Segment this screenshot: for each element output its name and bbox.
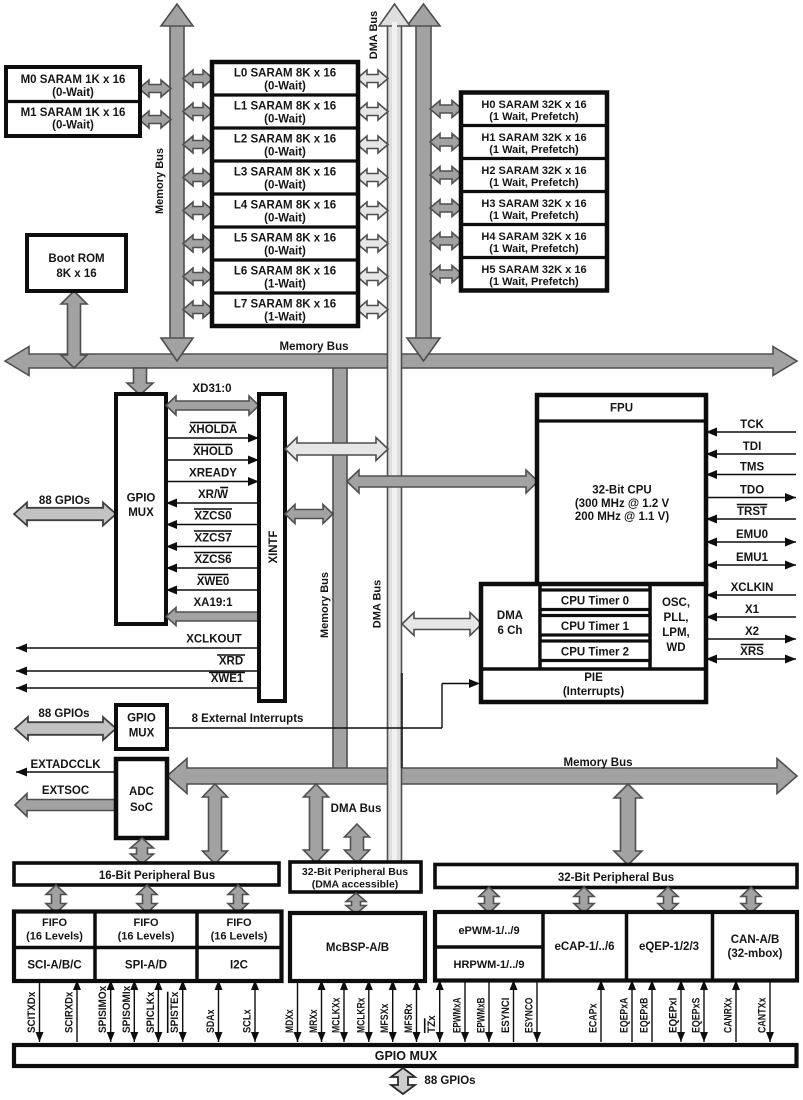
svg-text:(0-Wait): (0-Wait) [264, 81, 306, 93]
svg-text:XD31:0: XD31:0 [193, 383, 232, 395]
svg-text:CPU Timer 1: CPU Timer 1 [561, 621, 630, 633]
svg-text:DMA Bus: DMA Bus [368, 11, 380, 59]
svg-text:XRD: XRD [219, 656, 243, 668]
svg-text:MFSXx: MFSXx [379, 1003, 391, 1033]
svg-text:MUX: MUX [128, 507, 154, 519]
svg-text:XZCS6: XZCS6 [194, 554, 231, 566]
svg-text:XZCS7: XZCS7 [194, 533, 231, 545]
svg-text:L2 SARAM 8K x 16: L2 SARAM 8K x 16 [234, 134, 336, 146]
svg-text:(0-Wait): (0-Wait) [264, 246, 306, 258]
svg-text:SPISOMIx: SPISOMIx [121, 985, 133, 1033]
svg-text:(1-Wait): (1-Wait) [264, 312, 306, 324]
svg-text:8K x 16: 8K x 16 [56, 268, 96, 280]
svg-text:SCIRXDx: SCIRXDx [64, 991, 76, 1033]
svg-text:MUX: MUX [129, 728, 155, 740]
svg-text:ECAPx: ECAPx [588, 1003, 600, 1033]
svg-text:EMU0: EMU0 [736, 529, 768, 541]
svg-text:X2: X2 [745, 626, 759, 638]
svg-text:Memory Bus: Memory Bus [563, 757, 632, 769]
svg-text:EQEPxI: EQEPxI [668, 998, 680, 1033]
svg-text:16-Bit Peripheral Bus: 16-Bit Peripheral Bus [99, 870, 215, 882]
svg-text:(16 Levels): (16 Levels) [26, 931, 83, 943]
svg-text:XRS: XRS [740, 646, 764, 658]
svg-text:HRPWM-1/../9: HRPWM-1/../9 [454, 959, 525, 971]
svg-text:EPWMxA: EPWMxA [452, 998, 464, 1033]
svg-text:MFSRx: MFSRx [403, 1003, 415, 1033]
svg-text:8 External Interrupts: 8 External Interrupts [192, 713, 304, 725]
svg-text:XR/W: XR/W [198, 489, 228, 501]
svg-text:SDAx: SDAx [205, 1009, 217, 1033]
svg-text:(1 Wait, Prefetch): (1 Wait, Prefetch) [489, 144, 579, 156]
svg-text:TRST: TRST [737, 506, 767, 518]
svg-text:L0 SARAM 8K x 16: L0 SARAM 8K x 16 [234, 68, 336, 80]
svg-text:200 MHz @ 1.1 V): 200 MHz @ 1.1 V) [575, 511, 669, 523]
svg-text:PLL,: PLL, [664, 612, 689, 624]
svg-text:XREADY: XREADY [189, 468, 237, 480]
svg-text:LPM,: LPM, [662, 627, 689, 639]
svg-text:EMU1: EMU1 [736, 552, 769, 564]
svg-text:GPIO: GPIO [127, 493, 156, 505]
svg-text:CPU Timer 0: CPU Timer 0 [561, 596, 629, 608]
svg-text:H3 SARAM 32K x 16: H3 SARAM 32K x 16 [481, 198, 586, 210]
svg-text:H2 SARAM 32K x 16: H2 SARAM 32K x 16 [481, 165, 586, 177]
svg-text:DMA: DMA [497, 610, 523, 622]
svg-text:XHOLD: XHOLD [193, 446, 233, 458]
svg-text:X1: X1 [745, 604, 760, 616]
svg-text:SPICLKx: SPICLKx [145, 991, 157, 1033]
svg-text:L4 SARAM 8K x 16: L4 SARAM 8K x 16 [234, 200, 336, 212]
svg-text:(16 Levels): (16 Levels) [118, 931, 175, 943]
svg-text:M0 SARAM 1K x 16: M0 SARAM 1K x 16 [21, 74, 126, 86]
svg-text:XCLKIN: XCLKIN [731, 582, 774, 594]
svg-text:32-Bit Peripheral Bus: 32-Bit Peripheral Bus [302, 866, 408, 878]
svg-text:GPIO MUX: GPIO MUX [375, 1049, 438, 1063]
svg-text:EQEPxB: EQEPxB [639, 998, 651, 1033]
svg-text:TMS: TMS [740, 462, 765, 474]
svg-text:(0-Wait): (0-Wait) [52, 120, 94, 132]
svg-text:CAN-A/B: CAN-A/B [731, 934, 780, 946]
svg-text:SCLx: SCLx [242, 1009, 254, 1033]
svg-text:(1 Wait, Prefetch): (1 Wait, Prefetch) [489, 111, 579, 123]
svg-text:32-Bit CPU: 32-Bit CPU [592, 485, 651, 497]
svg-text:DMA Bus: DMA Bus [372, 580, 384, 628]
svg-text:TZx: TZx [426, 1015, 438, 1033]
svg-text:(300 MHz @ 1.2 V: (300 MHz @ 1.2 V [575, 498, 670, 510]
svg-text:eCAP-1/../6: eCAP-1/../6 [554, 941, 614, 953]
svg-text:Memory Bus: Memory Bus [279, 341, 348, 353]
svg-text:(16 Levels): (16 Levels) [211, 931, 268, 943]
svg-text:SCI-A/B/C: SCI-A/B/C [27, 960, 81, 972]
svg-text:I2C: I2C [230, 960, 248, 972]
svg-text:(Interrupts): (Interrupts) [563, 686, 625, 698]
svg-text:XCLKOUT: XCLKOUT [186, 634, 242, 646]
svg-text:TCK: TCK [740, 419, 764, 431]
svg-text:XWE1: XWE1 [211, 673, 244, 685]
svg-text:ESYNCI: ESYNCI [500, 998, 512, 1033]
svg-text:WD: WD [666, 642, 685, 654]
svg-text:XWE0: XWE0 [197, 576, 230, 588]
svg-text:MRXx: MRXx [308, 1009, 320, 1033]
svg-text:(0-Wait): (0-Wait) [264, 213, 306, 225]
svg-text:M1 SARAM 1K x 16: M1 SARAM 1K x 16 [21, 107, 126, 119]
svg-text:ADC: ADC [129, 786, 154, 798]
svg-text:SCITXDx: SCITXDx [26, 991, 38, 1033]
svg-text:CANRXx: CANRXx [723, 997, 735, 1033]
svg-text:XA19:1: XA19:1 [194, 597, 234, 609]
svg-text:EQEPxA: EQEPxA [619, 998, 631, 1033]
svg-text:CPU Timer 2: CPU Timer 2 [561, 647, 629, 659]
svg-text:EXTADCCLK: EXTADCCLK [30, 759, 101, 771]
svg-text:(0-Wait): (0-Wait) [264, 114, 306, 126]
svg-text:88 GPIOs: 88 GPIOs [38, 708, 89, 720]
svg-text:ePWM-1/../9: ePWM-1/../9 [458, 925, 519, 937]
svg-text:DMA Bus: DMA Bus [331, 803, 382, 815]
svg-text:L3 SARAM 8K x 16: L3 SARAM 8K x 16 [234, 167, 336, 179]
svg-text:SoC: SoC [130, 802, 153, 814]
svg-text:SPI-A/D: SPI-A/D [125, 960, 167, 972]
svg-text:GPIO: GPIO [127, 713, 156, 725]
svg-text:H4 SARAM 32K x 16: H4 SARAM 32K x 16 [481, 231, 586, 243]
svg-text:PIE: PIE [584, 672, 603, 684]
svg-text:EXTSOC: EXTSOC [42, 785, 89, 797]
svg-text:L1 SARAM 8K x 16: L1 SARAM 8K x 16 [234, 101, 336, 113]
svg-text:(1-Wait): (1-Wait) [264, 279, 306, 291]
svg-text:ESYNCO: ESYNCO [524, 997, 536, 1033]
svg-text:OSC,: OSC, [662, 597, 690, 609]
svg-text:6 Ch: 6 Ch [498, 625, 523, 637]
svg-text:(DMA accessible): (DMA accessible) [312, 879, 399, 891]
svg-text:L7 SARAM 8K x 16: L7 SARAM 8K x 16 [234, 299, 336, 311]
svg-text:88 GPIOs: 88 GPIOs [424, 1075, 475, 1087]
svg-text:MCLKXx: MCLKXx [331, 997, 343, 1033]
svg-text:Memory Bus: Memory Bus [319, 572, 331, 638]
svg-text:EQEPxS: EQEPxS [691, 998, 703, 1033]
svg-text:H5 SARAM 32K x 16: H5 SARAM 32K x 16 [481, 264, 586, 276]
svg-text:XZCS0: XZCS0 [194, 511, 231, 523]
svg-text:88 GPIOs: 88 GPIOs [39, 495, 90, 507]
svg-text:(1 Wait, Prefetch): (1 Wait, Prefetch) [489, 243, 579, 255]
svg-text:(0-Wait): (0-Wait) [52, 87, 94, 99]
svg-text:CANTXx: CANTXx [757, 997, 769, 1033]
svg-text:Boot ROM: Boot ROM [48, 253, 104, 265]
svg-text:L6 SARAM 8K x 16: L6 SARAM 8K x 16 [234, 266, 336, 278]
svg-text:L5 SARAM 8K x 16: L5 SARAM 8K x 16 [234, 233, 336, 245]
svg-text:SPISTEx: SPISTEx [169, 991, 181, 1033]
svg-text:MDXx: MDXx [284, 1009, 296, 1033]
svg-text:(0-Wait): (0-Wait) [264, 147, 306, 159]
svg-text:H0 SARAM 32K x 16: H0 SARAM 32K x 16 [481, 99, 586, 111]
svg-text:(1 Wait, Prefetch): (1 Wait, Prefetch) [489, 210, 579, 222]
svg-text:FIFO: FIFO [133, 917, 158, 929]
svg-text:XHOLDA: XHOLDA [189, 424, 238, 436]
svg-text:eQEP-1/2/3: eQEP-1/2/3 [639, 941, 699, 953]
svg-text:TDO: TDO [740, 485, 764, 497]
svg-text:TDI: TDI [743, 441, 762, 453]
svg-text:(1 Wait, Prefetch): (1 Wait, Prefetch) [489, 177, 579, 189]
svg-text:FIFO: FIFO [42, 917, 67, 929]
svg-text:McBSP-A/B: McBSP-A/B [326, 942, 389, 954]
svg-text:Memory Bus: Memory Bus [154, 148, 166, 214]
svg-text:32-Bit Peripheral Bus: 32-Bit Peripheral Bus [558, 872, 674, 884]
svg-text:H1 SARAM 32K x 16: H1 SARAM 32K x 16 [481, 132, 586, 144]
svg-text:FIFO: FIFO [226, 917, 251, 929]
svg-text:XINTF: XINTF [266, 531, 280, 564]
svg-text:FPU: FPU [610, 403, 633, 415]
svg-text:(32-mbox): (32-mbox) [728, 948, 783, 960]
svg-text:SPISIMOx: SPISIMOx [97, 985, 109, 1033]
svg-text:EPWMxB: EPWMxB [476, 998, 488, 1033]
svg-text:(1 Wait, Prefetch): (1 Wait, Prefetch) [489, 276, 579, 288]
svg-text:(0-Wait): (0-Wait) [264, 180, 306, 192]
svg-text:MCLKRx: MCLKRx [355, 997, 367, 1033]
